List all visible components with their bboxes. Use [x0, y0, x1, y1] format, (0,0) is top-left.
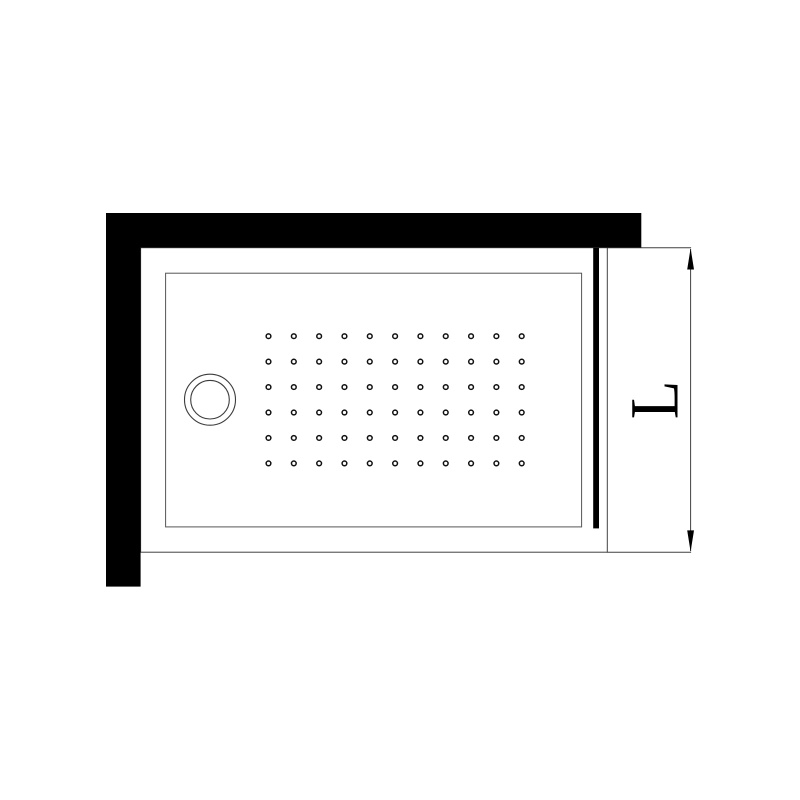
svg-text:L: L: [617, 381, 693, 419]
